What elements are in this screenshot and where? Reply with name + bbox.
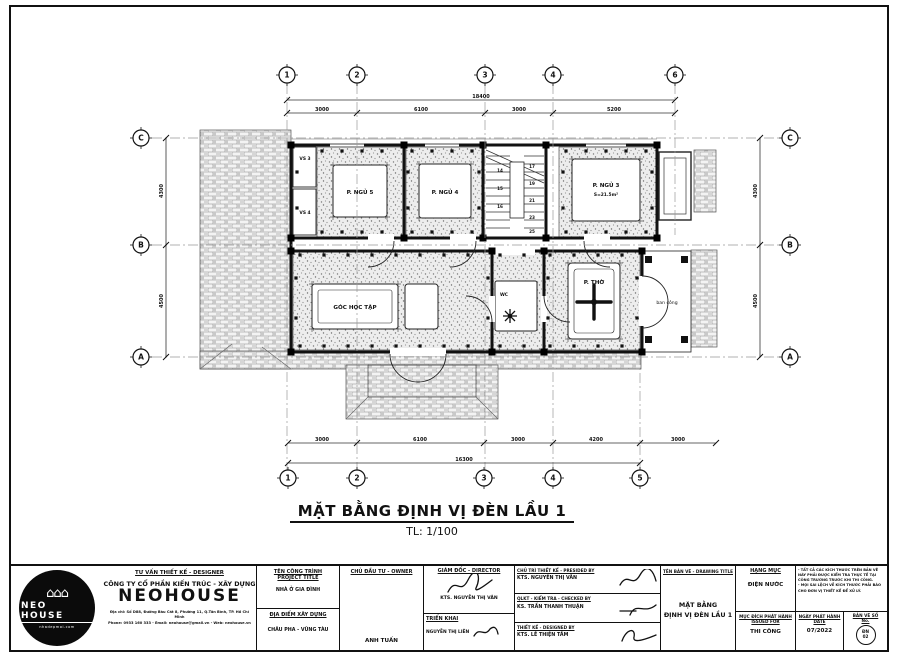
company-address-line: Địa chỉ: Số D88, Đường Bàu Cát 8, Phường… — [106, 610, 253, 621]
deploy-signature — [471, 624, 501, 640]
svg-text:1: 1 — [285, 474, 290, 483]
presided-signature — [616, 569, 660, 591]
drawing-title-line1: MẶT BẰNG — [679, 601, 717, 611]
svg-text:23: 23 — [529, 215, 535, 220]
project-label-en: PROJECT TITLE — [259, 575, 337, 581]
svg-text:2: 2 — [354, 71, 359, 80]
grid-bubble-bottom-2: 2 — [346, 467, 368, 489]
category-cell: HẠNG MỤC ĐIỆN NƯỚC MỤC ĐÍCH PHÁT HÀNH IS… — [736, 566, 796, 650]
designed-signature — [616, 625, 660, 647]
svg-text:C: C — [138, 134, 144, 143]
drawing-caption-scale: TL: 1/100 — [0, 525, 882, 538]
svg-text:16300: 16300 — [455, 457, 473, 463]
company-contact-line: Phone: 0933 160 333 - Email: neohouse@gm… — [106, 621, 253, 626]
logo-cell: ⌂⌂⌂ NEO HOUSE nhadepmoi.com — [11, 566, 103, 650]
svg-text:14: 14 — [497, 168, 503, 173]
checked-signature — [616, 597, 660, 619]
location-value: CHÂU PHA - VŨNG TÀU — [259, 628, 337, 633]
director-label: GIÁM ĐỐC - DIRECTOR — [426, 568, 512, 574]
svg-text:4500: 4500 — [159, 294, 165, 308]
grid-bubble-right-A: A — [779, 346, 801, 368]
room-label-vs4: VS 4 — [299, 210, 310, 216]
note-line-1: - TẤT CẢ CÁC KÍCH THƯỚC TRÊN BẢN VẼ NÀY … — [798, 568, 885, 583]
svg-text:4200: 4200 — [589, 437, 603, 443]
grid-bubble-bottom-1: 1 — [277, 467, 299, 489]
team-cell: CHỦ TRÌ THIẾT KẾ - PRESIDED BY KTS. NGUY… — [515, 566, 661, 650]
date-value: 07/2022 — [798, 628, 841, 634]
svg-text:5: 5 — [637, 474, 642, 483]
grid-bubble-top-4: 4 — [542, 64, 564, 86]
svg-text:3000: 3000 — [315, 437, 329, 443]
number-label-en: No. — [845, 618, 886, 623]
issued-value: THI CÔNG — [738, 629, 793, 635]
project-cell: TÊN CÔNG TRÌNH PROJECT TITLE NHÀ Ở GIA Đ… — [257, 566, 340, 650]
drawing-caption: MẶT BẰNG ĐỊNH VỊ ĐÈN LẦU 1 TL: 1/100 — [0, 501, 882, 538]
svg-text:25: 25 — [529, 229, 535, 234]
team-row-checked: QLKT - KIỂM TRA - CHECKED BY KS. TRẦN TH… — [515, 594, 660, 622]
svg-text:6: 6 — [672, 71, 677, 80]
grid-bubble-left-A: A — [130, 346, 152, 368]
owner-label: CHỦ ĐẦU TƯ - OWNER — [340, 566, 423, 578]
grid-bubble-bottom-3: 3 — [473, 467, 495, 489]
presided-label: CHỦ TRÌ THIẾT KẾ - PRESIDED BY — [517, 568, 614, 573]
designed-name: KTS. LÊ THIỆN TÂM — [517, 633, 614, 638]
ceiling-fan-wc — [503, 309, 517, 323]
grid-bubble-top-3: 3 — [474, 64, 496, 86]
room-label-worship: P. THỜ — [584, 279, 605, 286]
svg-text:4: 4 — [550, 474, 555, 483]
svg-text:15: 15 — [497, 186, 503, 191]
room-label-wc: WC — [500, 292, 508, 298]
director-cell: GIÁM ĐỐC - DIRECTOR KTS. NGUYỄN THỊ VÂN … — [424, 566, 515, 650]
svg-text:19: 19 — [529, 181, 535, 186]
issued-label-en: ISSUED FOR — [738, 619, 793, 624]
staircase — [484, 146, 545, 237]
designed-label: THIẾT KẾ - DESIGNED BY — [517, 625, 614, 630]
deploy-label: TRIỂN KHAI — [426, 616, 512, 622]
svg-text:B: B — [787, 241, 793, 250]
room-label-bed5: P. NGỦ 5 — [347, 188, 374, 196]
svg-text:3000: 3000 — [512, 107, 526, 113]
team-row-designed: THIẾT KẾ - DESIGNED BY KTS. LÊ THIỆN TÂM — [515, 623, 660, 650]
svg-text:6100: 6100 — [414, 107, 428, 113]
svg-text:C: C — [787, 134, 793, 143]
svg-text:3000: 3000 — [671, 437, 685, 443]
svg-text:2: 2 — [354, 474, 359, 483]
director-name: KTS. NGUYỄN THỊ VÂN — [426, 596, 512, 601]
checked-name: KS. TRẦN THANH THUẬN — [517, 605, 614, 610]
deploy-name: NGUYỄN THỊ LIÊN — [426, 630, 469, 635]
grid-bubble-top-2: 2 — [346, 64, 368, 86]
logo-tagline: nhadepmoi.com — [39, 625, 75, 629]
grid-bubble-right-C: C — [779, 127, 801, 149]
drawing-title-cell: TÊN BẢN VẼ - DRAWING TITLE MẶT BẰNG ĐỊNH… — [661, 566, 736, 650]
company-address: Địa chỉ: Số D88, Đường Bàu Cát 8, Phường… — [106, 610, 253, 626]
svg-text:21: 21 — [529, 198, 535, 203]
company-role: TƯ VẤN THIẾT KẾ - DESIGNER — [135, 570, 224, 576]
room-label-balcony: ban công — [656, 299, 677, 306]
grid-bubble-right-B: B — [779, 234, 801, 256]
grid-bubble-top-1: 1 — [276, 64, 298, 86]
svg-text:4300: 4300 — [753, 184, 759, 198]
room-label-vs3: VS 3 — [299, 156, 310, 162]
svg-text:6100: 6100 — [413, 437, 427, 443]
room-label-bed4: P. NGỦ 4 — [432, 188, 459, 196]
note-line-2: - MỌI SAI LỆCH VỀ KÍCH THƯỚC PHẢI BÁO CH… — [798, 583, 885, 593]
logo-name: NEO HOUSE — [19, 600, 95, 623]
floor-plan-drawing: 18400 3000 6100 3000 5200 3000 6100 3000… — [0, 0, 900, 560]
stamp-line2: 02 — [863, 635, 869, 640]
svg-text:1: 1 — [284, 71, 289, 80]
notes-date-cell: - TẤT CẢ CÁC KÍCH THƯỚC TRÊN BẢN VẼ NÀY … — [796, 566, 887, 650]
neohouse-logo: ⌂⌂⌂ NEO HOUSE nhadepmoi.com — [19, 570, 95, 646]
svg-text:4500: 4500 — [753, 294, 759, 308]
svg-text:A: A — [787, 353, 793, 362]
svg-text:3000: 3000 — [315, 107, 329, 113]
svg-text:3: 3 — [482, 71, 487, 80]
drawing-number-stamp: ĐN 02 — [856, 625, 876, 645]
category-label: HẠNG MỤC — [738, 568, 793, 574]
room-label-bed3: P. NGỦ 3 — [593, 181, 620, 189]
svg-text:18400: 18400 — [472, 94, 490, 100]
owner-name: ANH TUẤN — [340, 638, 423, 644]
grid-bubble-bottom-4: 4 — [542, 467, 564, 489]
drawing-sheet: 18400 3000 6100 3000 5200 3000 6100 3000… — [0, 0, 900, 658]
owner-cell: CHỦ ĐẦU TƯ - OWNER ANH TUẤN — [340, 566, 424, 650]
date-label-en: DATE — [798, 619, 841, 624]
svg-text:4: 4 — [550, 71, 555, 80]
presided-name: KTS. NGUYỄN THỊ VÂN — [517, 576, 614, 581]
company-brand: NEOHOUSE — [118, 588, 241, 606]
svg-text:17: 17 — [529, 164, 535, 169]
svg-text:4300: 4300 — [159, 184, 165, 198]
svg-text:5200: 5200 — [607, 107, 621, 113]
houses-icon: ⌂⌂⌂ — [46, 587, 68, 600]
svg-text:A: A — [138, 353, 144, 362]
drawing-caption-title: MẶT BẰNG ĐỊNH VỊ ĐÈN LẦU 1 — [290, 502, 575, 523]
grid-bubble-left-B: B — [130, 234, 152, 256]
svg-text:B: B — [138, 241, 144, 250]
grid-bubble-bottom-5: 5 — [629, 467, 651, 489]
project-name: NHÀ Ở GIA ĐÌNH — [259, 588, 337, 593]
svg-text:16: 16 — [497, 204, 503, 209]
category-value: ĐIỆN NƯỚC — [738, 582, 793, 588]
svg-text:3: 3 — [481, 474, 486, 483]
grid-bubble-top-6: 6 — [664, 64, 686, 86]
svg-text:3000: 3000 — [511, 437, 525, 443]
title-block: ⌂⌂⌂ NEO HOUSE nhadepmoi.com TƯ VẤN THIẾT… — [9, 564, 889, 652]
drawing-title-line2: ĐỊNH VỊ ĐÈN LẦU 1 — [664, 611, 732, 621]
location-label: ĐỊA ĐIỂM XÂY DỰNG — [259, 612, 337, 618]
director-signature — [442, 574, 496, 596]
room-label-bed3-area: S=21.5m² — [594, 192, 618, 198]
team-row-presided: CHỦ TRÌ THIẾT KẾ - PRESIDED BY KTS. NGUY… — [515, 566, 660, 594]
company-cell: TƯ VẤN THIẾT KẾ - DESIGNER CÔNG TY CỔ PH… — [103, 566, 257, 650]
room-label-study: GÓC HỌC TẬP — [333, 304, 376, 311]
grid-bubble-left-C: C — [130, 127, 152, 149]
checked-label: QLKT - KIỂM TRA - CHECKED BY — [517, 596, 614, 601]
